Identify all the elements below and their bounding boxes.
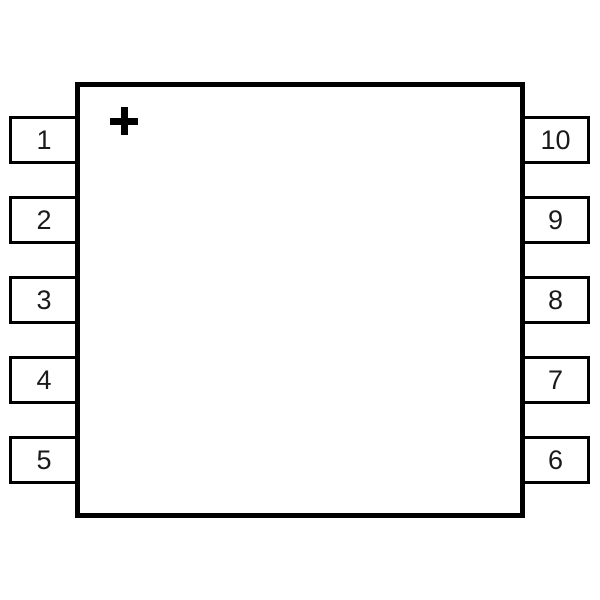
- pin-number: 5: [36, 447, 51, 474]
- pin-box-2: 2: [9, 196, 79, 244]
- pin-number: 10: [540, 127, 570, 154]
- pin-box-6: 6: [521, 436, 590, 484]
- pin-box-8: 8: [521, 276, 590, 324]
- pin-box-10: 10: [521, 116, 590, 164]
- pin-box-3: 3: [9, 276, 79, 324]
- pin-number: 1: [36, 127, 51, 154]
- pin-box-1: 1: [9, 116, 79, 164]
- pin-number: 7: [548, 367, 563, 394]
- pin-number: 6: [548, 447, 563, 474]
- chip-body: [75, 82, 525, 518]
- pin-box-9: 9: [521, 196, 590, 244]
- pin-box-5: 5: [9, 436, 79, 484]
- pin-number: 8: [548, 287, 563, 314]
- plus-marker-vertical-bar: [121, 107, 128, 135]
- pin-number: 2: [36, 207, 51, 234]
- pin-number: 9: [548, 207, 563, 234]
- plus-polarity-marker-icon: [110, 107, 138, 135]
- pin-number: 4: [36, 367, 51, 394]
- pin-box-4: 4: [9, 356, 79, 404]
- ic-pinout-diagram: 1 2 3 4 5 10 9 8 7 6: [0, 0, 600, 600]
- pin-box-7: 7: [521, 356, 590, 404]
- pin-number: 3: [36, 287, 51, 314]
